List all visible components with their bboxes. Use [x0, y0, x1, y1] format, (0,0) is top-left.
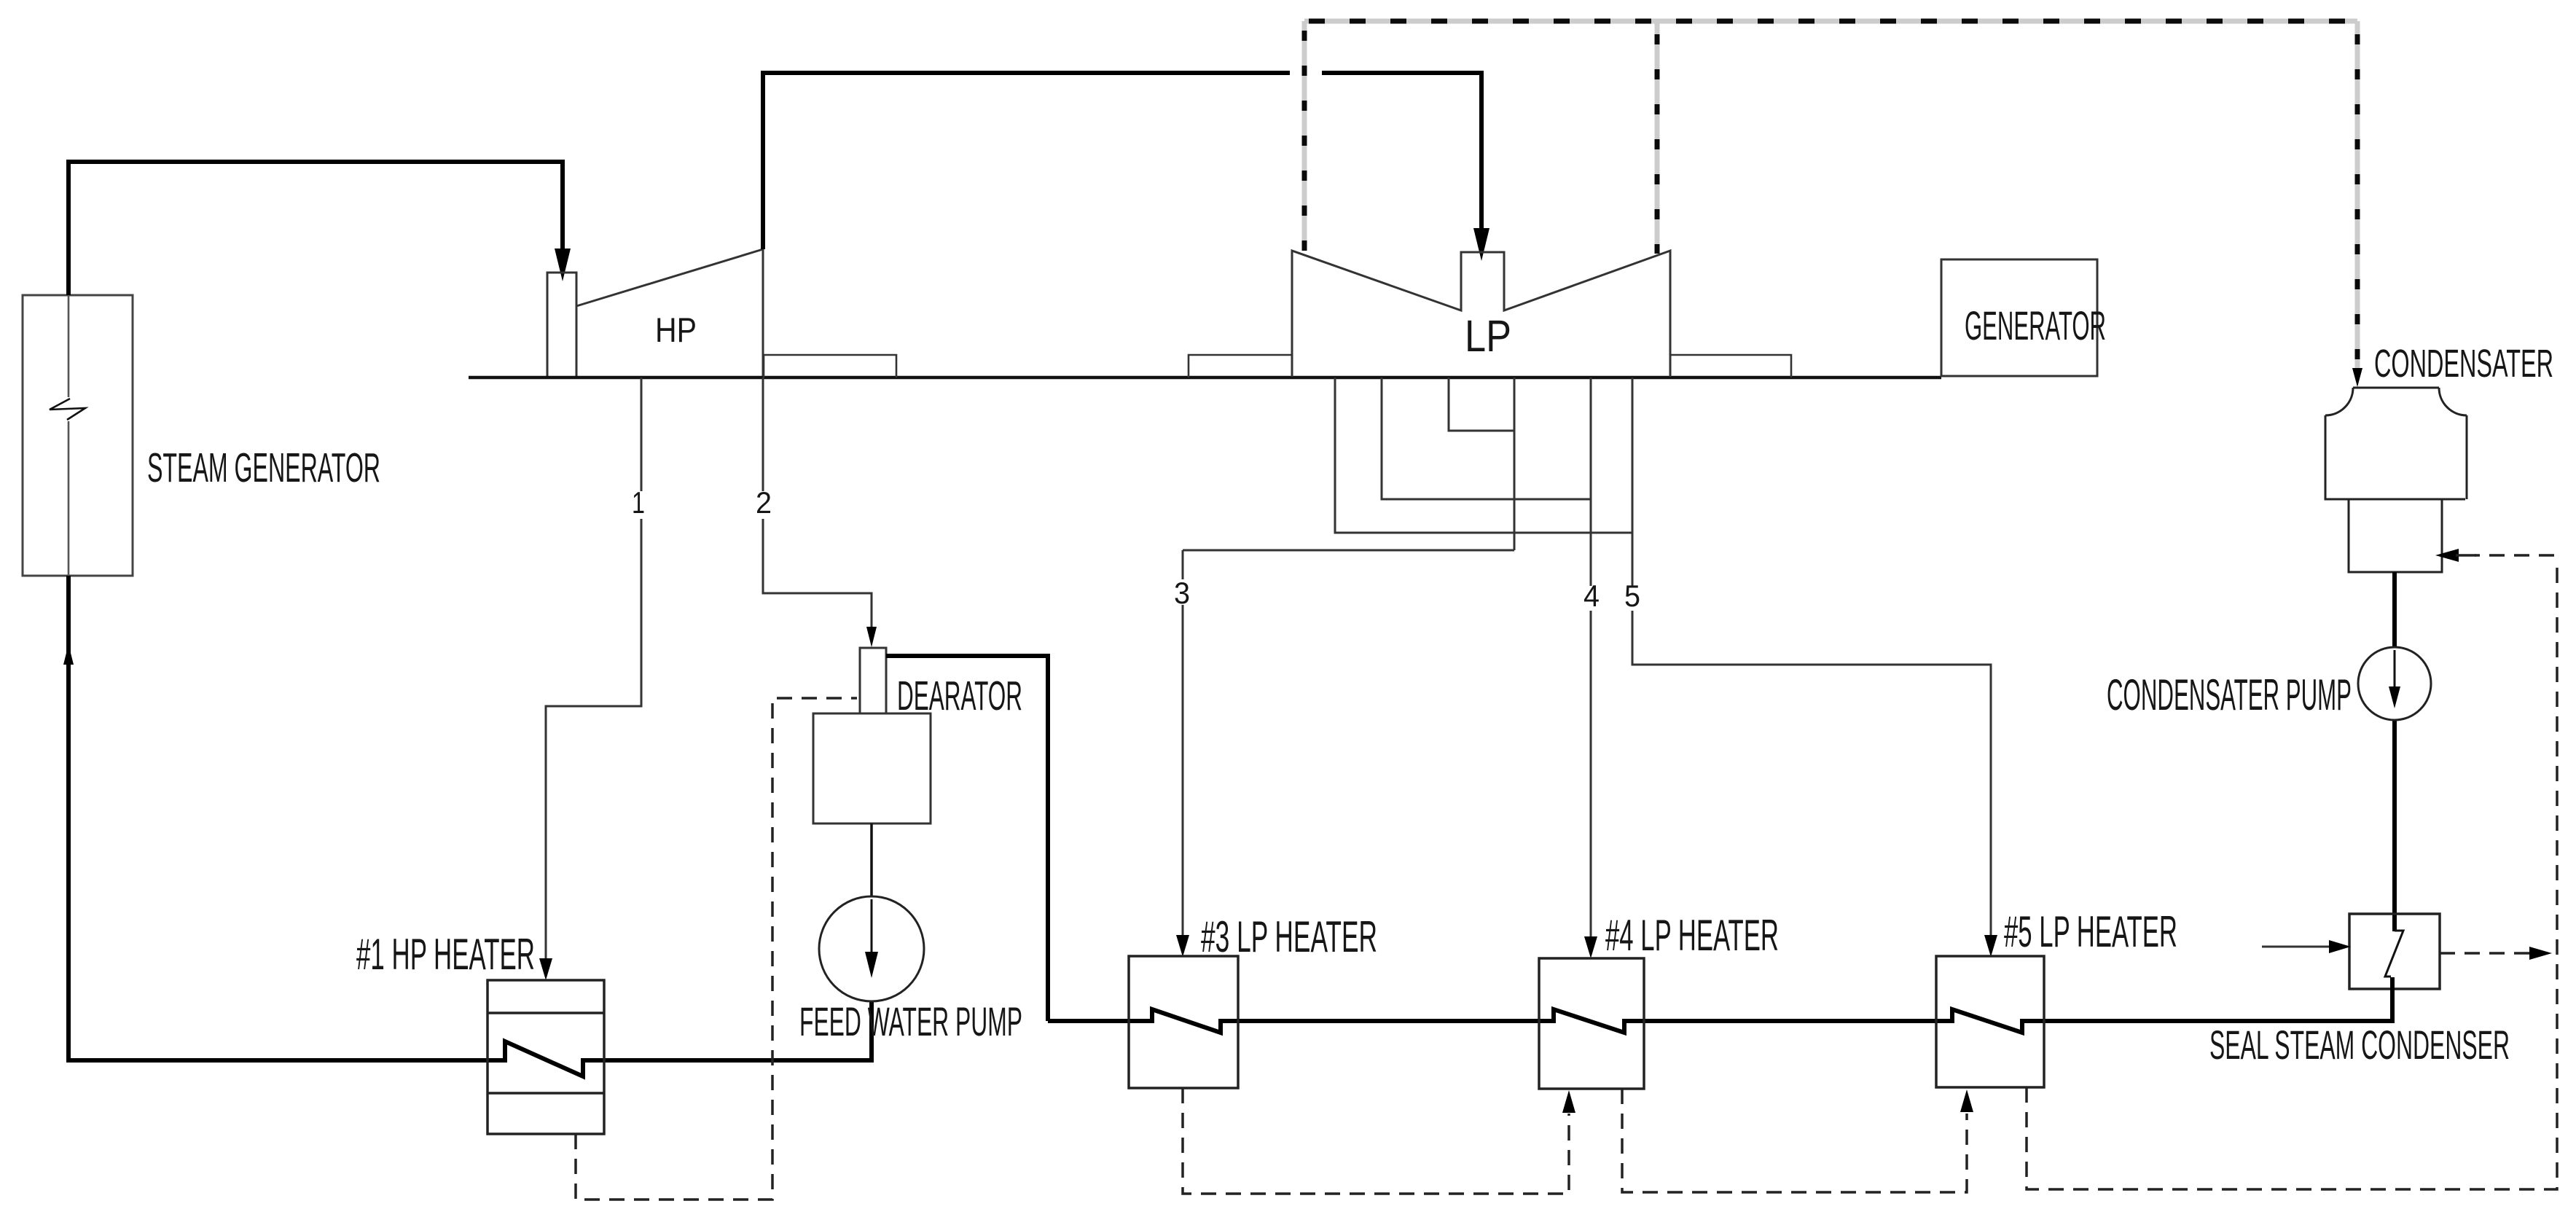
svg-text:STEAM GENERATOR: STEAM GENERATOR	[147, 445, 380, 491]
svg-text:DEARATOR: DEARATOR	[897, 673, 1022, 719]
svg-text:#1 HP HEATER: #1 HP HEATER	[356, 930, 535, 979]
svg-text:FEED WATER PUMP: FEED WATER PUMP	[799, 998, 1022, 1044]
svg-text:2: 2	[756, 485, 772, 520]
svg-text:GENERATOR: GENERATOR	[1965, 302, 2106, 348]
svg-text:#3 LP HEATER: #3 LP HEATER	[1201, 912, 1377, 961]
svg-text:3: 3	[1174, 576, 1190, 610]
svg-text:LP: LP	[1465, 311, 1511, 361]
svg-text:#4 LP HEATER: #4 LP HEATER	[1605, 911, 1779, 960]
svg-text:SEAL STEAM CONDENSER: SEAL STEAM CONDENSER	[2209, 1022, 2510, 1068]
svg-text:4: 4	[1583, 579, 1600, 613]
svg-text:#5 LP HEATER: #5 LP HEATER	[2004, 907, 2177, 956]
svg-text:CONDENSATER: CONDENSATER	[2374, 342, 2553, 386]
svg-text:1: 1	[632, 485, 645, 520]
svg-text:5: 5	[1624, 579, 1640, 613]
svg-text:CONDENSATER PUMP: CONDENSATER PUMP	[2107, 670, 2352, 719]
svg-text:HP: HP	[655, 310, 697, 349]
